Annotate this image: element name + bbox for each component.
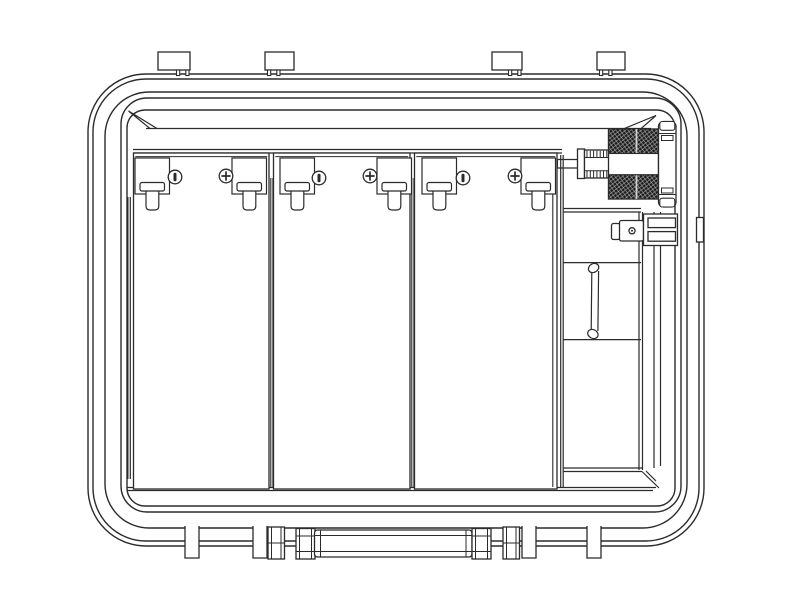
knurled-knob-icon [557,122,676,208]
tab-leg [609,70,612,76]
tab-leg [509,70,512,76]
compartment-right-wall [639,212,661,470]
clip-pull-stem [433,190,446,210]
flange-notch-top [662,136,674,141]
clip-pull-cap [237,183,262,192]
handle-pivot-left [296,529,315,560]
tab-leg [518,70,521,76]
clip-pull-stem [532,190,545,210]
clip-pull-stem [291,190,304,210]
compartment-bottom [563,468,642,472]
case-assembly-drawing [0,0,792,612]
bevel-top-right [622,116,656,130]
clip-pull-cap [427,183,452,192]
slotted-screw-icon [456,171,470,185]
flange-lobe-bottom [660,198,675,207]
phillips-screw-icon [219,169,233,183]
knurl-band-bottom [609,175,659,199]
compartment-divider [561,155,564,487]
battery-modules [134,153,558,489]
plug-pin-dot [631,230,633,232]
compartment-shelf-1 [563,209,641,213]
plug-cap [612,224,621,240]
case-foot [522,526,536,558]
connector-plug-icon [612,214,704,246]
clamp-rail-top [648,218,676,228]
flange-lobe-top [660,122,675,131]
bevel-top-left [129,111,158,129]
tab-leg [600,70,603,76]
right-compartment [561,155,661,488]
wall-stub [697,218,704,243]
tab-leg [186,70,189,76]
slotted-screw-icon [312,171,326,185]
stem-flange [578,149,585,179]
handle-pivot-right [472,529,491,560]
lid-tab [492,52,522,76]
divider-1 [271,178,273,487]
lid-tab [158,52,190,76]
flange-notch-bottom [662,188,674,193]
lid-tab [265,52,294,76]
phillips-screw-icon [508,169,522,183]
tab-leg [277,70,280,76]
left-edge-strip [128,197,130,479]
bevel-bottom-right [642,471,659,488]
case-foot [587,526,601,558]
knurl-band-top [609,129,659,154]
clip-pull-stem [388,190,401,210]
strap-body [591,271,598,331]
lid-hinge-tabs [158,52,625,76]
technical-drawing-page [0,0,792,612]
pull-strap-icon [586,262,600,341]
clip-pull-cap [526,183,551,192]
clip-pull-cap [285,183,310,192]
case-foot [253,526,267,558]
tab-leg [177,70,180,76]
case-foot [185,526,199,558]
divider-2 [412,178,414,487]
clip-pull-stem [146,190,159,210]
clip-pull-cap [382,183,407,192]
folding-handle-icon [268,527,520,559]
clip-pull-stem [243,190,256,210]
slotted-screw-icon [168,170,182,184]
handle-bar [315,530,473,557]
clamp-rail-bottom [648,232,676,242]
phillips-screw-icon [363,169,377,183]
tab-leg [268,70,271,76]
lid-tab [597,52,625,76]
clip-pull-cap [140,183,165,192]
